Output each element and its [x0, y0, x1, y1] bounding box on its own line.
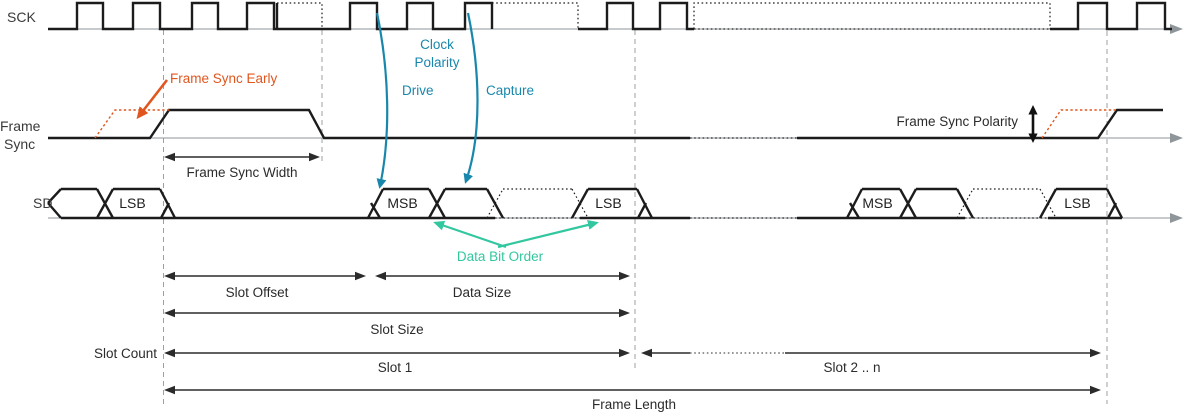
- timing-diagram-canvas: LSBMSBLSBMSBLSB SCK Frame Sync SD Frame …: [0, 0, 1184, 416]
- frame-sync-early-label: Frame Sync Early: [170, 71, 278, 86]
- sd-cell-label: LSB: [595, 195, 621, 211]
- frame-sync-polarity-label: Frame Sync Polarity: [896, 114, 1018, 129]
- drive-arrow: [377, 13, 387, 186]
- sck-signal-label: SCK: [7, 9, 36, 25]
- sd-signal-label: SD: [33, 195, 52, 211]
- sd-cell-label: MSB: [387, 195, 417, 211]
- slot-2-n-label: Slot 2 .. n: [823, 360, 880, 375]
- sd-cell-group: [48, 189, 175, 218]
- slot-count-label: Slot Count: [94, 346, 157, 361]
- frame-sync-signal-label-line1: Frame: [0, 118, 41, 134]
- sd-cell-label: MSB: [862, 195, 892, 211]
- frame-sync-width-label: Frame Sync Width: [186, 165, 297, 180]
- sd-cell-label: LSB: [1064, 195, 1090, 211]
- slot-offset-label: Slot Offset: [226, 285, 289, 300]
- drive-label: Drive: [402, 83, 434, 98]
- slot-1-label: Slot 1: [378, 360, 413, 375]
- data-bit-order-arrow-lsb: [498, 223, 596, 247]
- sck-waveform: [48, 3, 1172, 29]
- capture-arrow: [466, 13, 478, 181]
- timing-diagram: LSBMSBLSBMSBLSB SCK Frame Sync SD Frame …: [0, 0, 1184, 416]
- frame-sync-signal-label-line2: Sync: [4, 136, 35, 152]
- clock-polarity-label-line2: Polarity: [414, 55, 459, 70]
- data-size-label: Data Size: [453, 285, 512, 300]
- slot-size-label: Slot Size: [370, 322, 423, 337]
- frame-sync-polarity-arrow-up: [1028, 105, 1037, 115]
- capture-label: Capture: [486, 83, 534, 98]
- sd-cell-group-dotted: [487, 189, 588, 218]
- data-bit-order-arrow-msb: [436, 223, 506, 247]
- clock-polarity-label-line1: Clock: [420, 37, 454, 52]
- generated-geometry: LSBMSBLSBMSBLSB: [48, 3, 1172, 406]
- sck-waveform-dotted: [277, 3, 1050, 29]
- frame-length-label: Frame Length: [592, 397, 676, 412]
- data-bit-order-label: Data Bit Order: [457, 249, 544, 264]
- sd-cell-label: LSB: [119, 195, 145, 211]
